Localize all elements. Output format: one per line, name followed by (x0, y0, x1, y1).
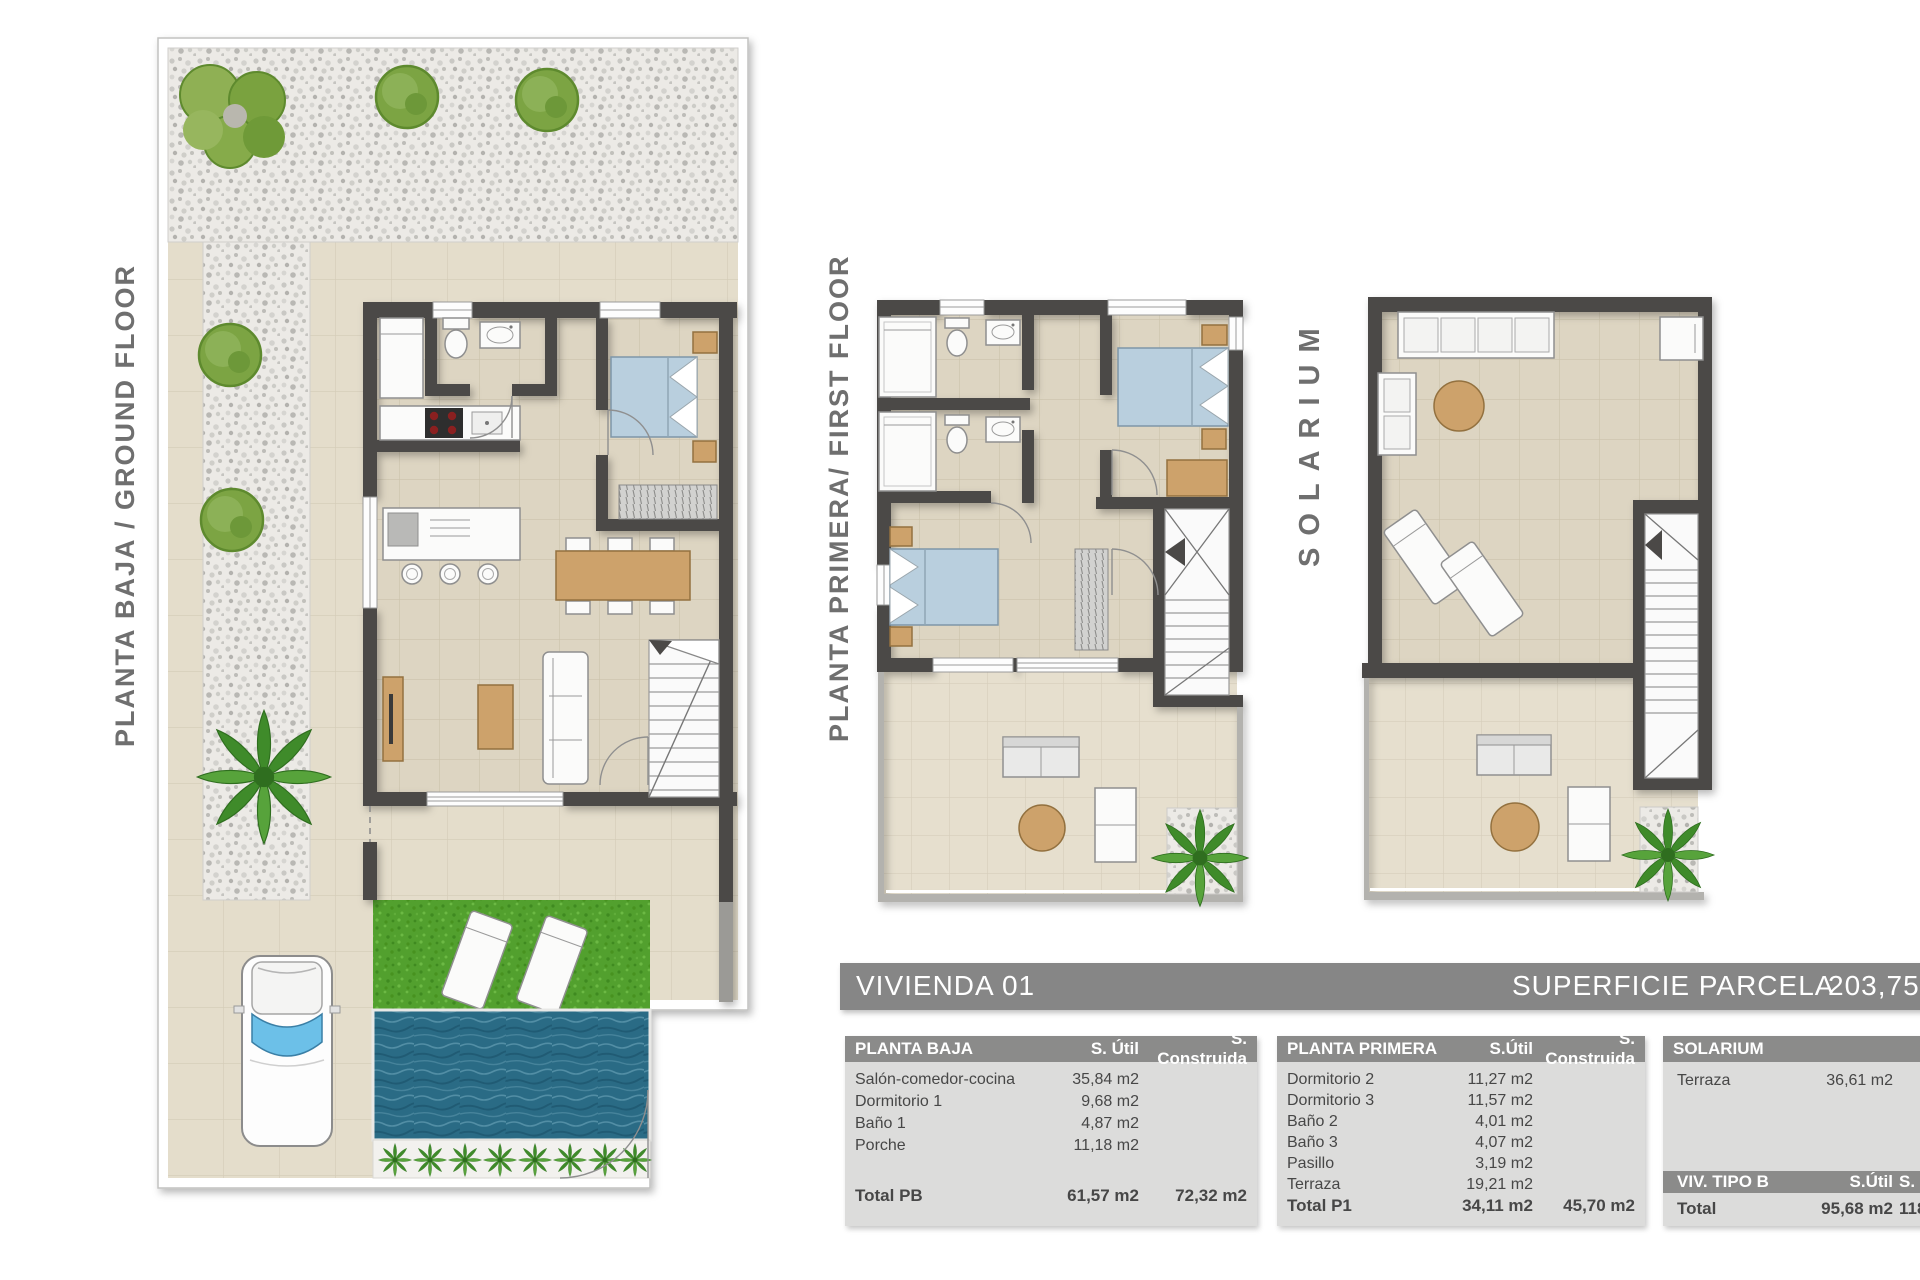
nightstand (693, 332, 717, 353)
nightstand (693, 441, 716, 462)
palm-plant (197, 710, 330, 843)
table-row: Porche 11,18 m2 (855, 1135, 1247, 1157)
nightstand (1202, 429, 1226, 449)
first-floor-plan (877, 300, 1248, 906)
nightstand (1202, 325, 1227, 345)
shrub (618, 1143, 651, 1176)
sofa (543, 652, 588, 784)
table-row: Baño 1 4,87 m2 (855, 1113, 1247, 1135)
corner-plant (1152, 810, 1249, 907)
round-table (1019, 805, 1065, 851)
car (234, 956, 340, 1146)
bench (1660, 317, 1703, 360)
shrub (483, 1143, 516, 1176)
parcel-surface-value: 203,75m2 (1828, 970, 1920, 1002)
toilet-icon (945, 415, 969, 425)
wardrobe (1075, 549, 1108, 650)
table-row: Terraza 19,21 m2 (1287, 1174, 1635, 1195)
parcel-surface-label: SUPERFICIE PARCELA (1512, 970, 1834, 1002)
table-row: Terraza 36,61 m2 (1663, 1062, 1920, 1092)
shower (879, 412, 936, 491)
table-planta-primera: PLANTA PRIMERA S.Útil S. Construida Dorm… (1277, 1036, 1645, 1226)
dining-area (556, 538, 690, 614)
table-row: Baño 3 4,07 m2 (1287, 1132, 1635, 1153)
tree-icon (199, 324, 261, 386)
table-header: SOLARIUM (1663, 1036, 1920, 1062)
table-row: Dormitorio 3 11,57 m2 (1287, 1090, 1635, 1111)
nightstand (890, 527, 912, 546)
stairs (1165, 509, 1229, 695)
ground-floor-label: PLANTA BAJA / GROUND FLOOR (110, 264, 141, 747)
tree-icon (201, 489, 263, 551)
stairs (649, 640, 719, 797)
stove-icon (425, 408, 463, 438)
stool-icon (402, 564, 422, 584)
table-row: Salón-comedor-cocina 35,84 m2 (855, 1069, 1247, 1091)
coffee-table (478, 685, 513, 749)
corner-plant (1622, 809, 1714, 901)
first-floor-label: PLANTA PRIMERA/ FIRST FLOOR (824, 255, 855, 742)
table-header: PLANTA PRIMERA S.Útil S. Construida (1277, 1036, 1645, 1062)
dwelling-title: VIVIENDA 01 (856, 970, 1035, 1002)
swimming-pool (373, 1010, 650, 1140)
table-subheader: VIV. TIPO B S.Útil S. Construida (1663, 1171, 1920, 1193)
solarium-plan (1362, 297, 1714, 901)
table-planta-baja: PLANTA BAJA S. Útil S. Construida Salón-… (845, 1036, 1257, 1226)
lawn (373, 900, 650, 1010)
table-row: Dormitorio 1 9,68 m2 (855, 1091, 1247, 1113)
toilet-icon (443, 318, 469, 329)
table-body: Salón-comedor-cocina 35,84 m2 Dormitorio… (845, 1062, 1257, 1213)
shrub (518, 1143, 551, 1176)
solarium-label: SOLARIUM (1294, 316, 1327, 567)
floorplan-brochure-page: PLANTA BAJA / GROUND FLOOR PLANTA PRIMER… (0, 0, 1920, 1280)
table-row: Dormitorio 2 11,27 m2 (1287, 1069, 1635, 1090)
nightstand (890, 627, 912, 646)
sink-icon (986, 320, 1020, 345)
stool-icon (478, 564, 498, 584)
shrub (413, 1143, 446, 1176)
table-row: Baño 2 4,01 m2 (1287, 1111, 1635, 1132)
table-solarium: SOLARIUM Terraza 36,61 m2 VIV. TIPO B S.… (1663, 1036, 1920, 1226)
shower (879, 317, 936, 397)
toilet-icon (945, 318, 969, 328)
table-row: Pasillo 3,19 m2 (1287, 1153, 1635, 1174)
shrub (448, 1143, 481, 1176)
dresser (1167, 460, 1227, 496)
title-bar: VIVIENDA 01 SUPERFICIE PARCELA 203,75m2 (840, 963, 1920, 1010)
tree-icon (376, 66, 438, 128)
round-table (1491, 803, 1539, 851)
table-total-row: Total PB 61,57 m272,32 m2 (855, 1185, 1247, 1207)
shrub (553, 1143, 586, 1176)
wardrobe (619, 485, 717, 519)
sink-icon (480, 322, 520, 348)
sink-icon (986, 417, 1020, 442)
table-total-row: Total P1 34,11 m245,70 m2 (1287, 1195, 1635, 1216)
table-total-row: Total 95,68 m2 118,02 m2 (1663, 1193, 1920, 1219)
dining-table (556, 551, 690, 600)
stairs (1645, 514, 1698, 778)
tree-icon (516, 69, 578, 131)
table-header: PLANTA BAJA S. Útil S. Construida (845, 1036, 1257, 1062)
table-body: Dormitorio 2 11,27 m2 Dormitorio 3 11,57… (1277, 1062, 1645, 1213)
round-table (1434, 381, 1484, 431)
stool-icon (440, 564, 460, 584)
shrub (378, 1143, 411, 1176)
ground-floor-plan (158, 38, 748, 1188)
